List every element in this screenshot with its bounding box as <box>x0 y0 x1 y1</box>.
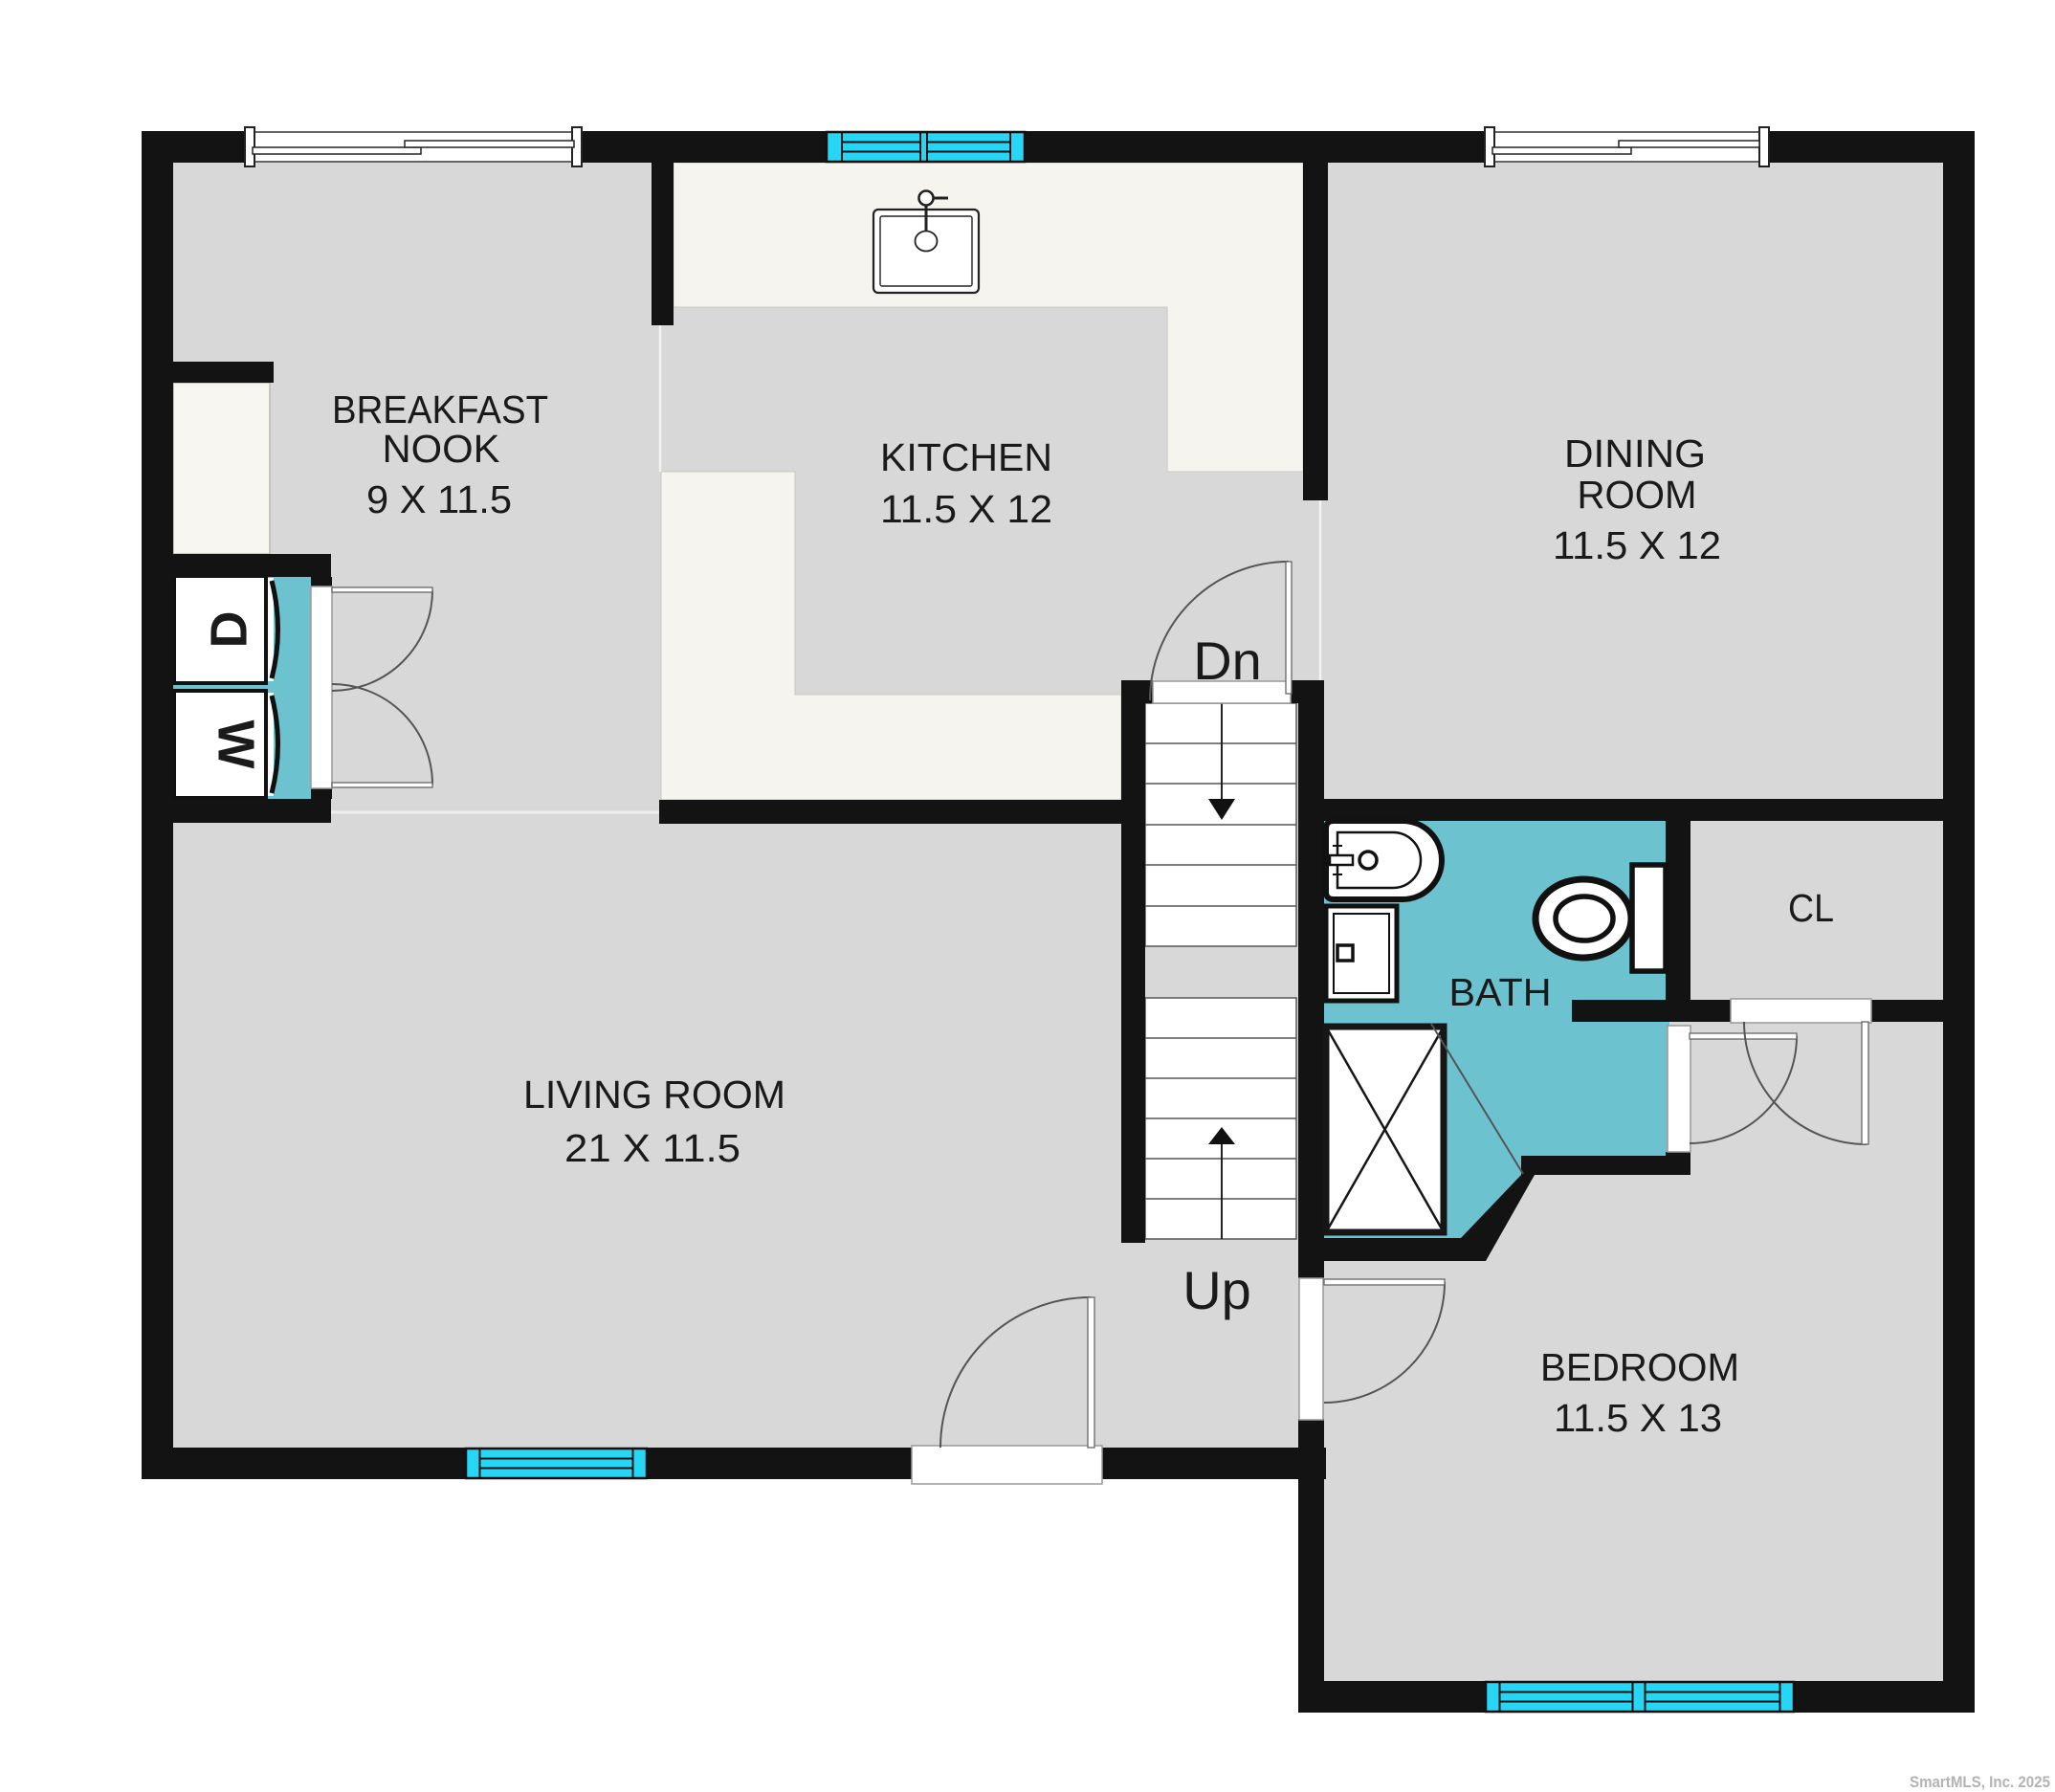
svg-text:21 X 11.5: 21 X 11.5 <box>564 1126 740 1170</box>
svg-text:ROOM: ROOM <box>1578 473 1697 517</box>
svg-text:KITCHEN: KITCHEN <box>880 435 1052 479</box>
svg-text:11.5 X 12: 11.5 X 12 <box>880 487 1052 531</box>
svg-text:11.5 X 13: 11.5 X 13 <box>1554 1396 1722 1440</box>
svg-text:SmartMLS, Inc. 2025: SmartMLS, Inc. 2025 <box>1910 1774 2050 1791</box>
svg-text:Up: Up <box>1182 1260 1251 1320</box>
svg-text:CL: CL <box>1788 886 1834 930</box>
svg-text:9 X 11.5: 9 X 11.5 <box>366 477 512 521</box>
svg-text:BATH: BATH <box>1449 970 1552 1014</box>
svg-text:BREAKFAST: BREAKFAST <box>332 387 548 431</box>
svg-text:DINING: DINING <box>1564 431 1706 476</box>
svg-text:Dn: Dn <box>1193 631 1262 691</box>
svg-text:11.5 X 12: 11.5 X 12 <box>1553 523 1721 567</box>
svg-text:W: W <box>208 720 265 769</box>
svg-text:NOOK: NOOK <box>383 427 500 471</box>
svg-text:LIVING ROOM: LIVING ROOM <box>523 1073 785 1117</box>
svg-text:BEDROOM: BEDROOM <box>1540 1345 1739 1389</box>
svg-text:D: D <box>200 611 257 649</box>
